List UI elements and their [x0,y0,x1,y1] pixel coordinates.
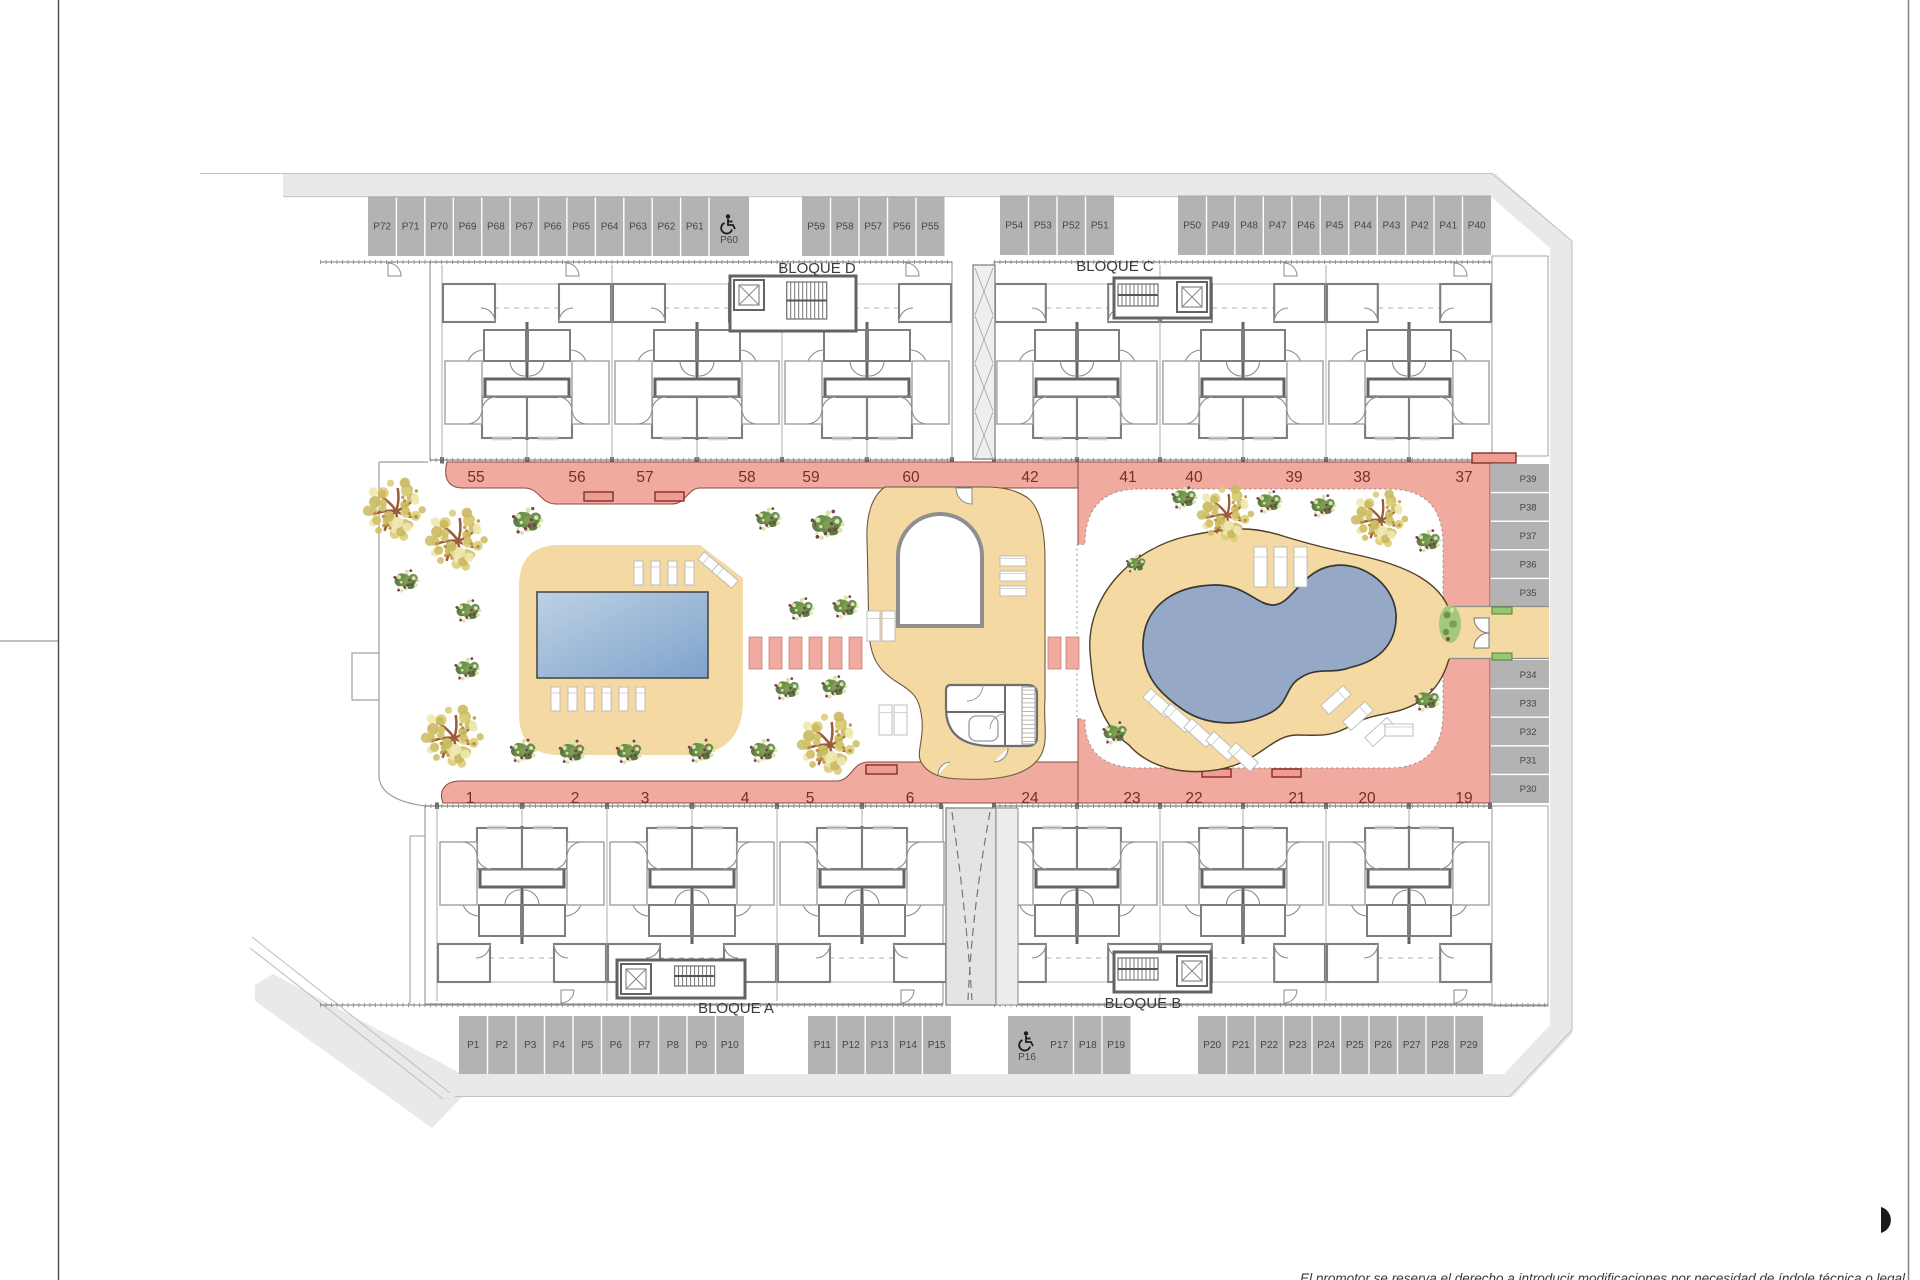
svg-text:P39: P39 [1520,474,1537,485]
svg-text:P18: P18 [1079,1040,1097,1051]
svg-text:P38: P38 [1520,502,1537,513]
svg-text:4: 4 [741,790,750,807]
svg-text:P57: P57 [864,222,882,233]
svg-text:56: 56 [568,469,585,486]
svg-text:P21: P21 [1232,1040,1250,1051]
svg-text:P13: P13 [871,1040,889,1051]
svg-text:BLOQUE D: BLOQUE D [778,260,856,277]
svg-text:P67: P67 [515,222,533,233]
svg-text:P62: P62 [658,222,676,233]
svg-text:P1: P1 [467,1040,480,1051]
svg-text:60: 60 [902,469,920,486]
svg-text:P51: P51 [1091,221,1109,232]
svg-text:57: 57 [636,469,653,486]
svg-text:P8: P8 [667,1040,680,1051]
svg-text:BLOQUE C: BLOQUE C [1076,258,1154,275]
svg-text:P10: P10 [721,1040,739,1051]
svg-text:2: 2 [571,790,580,807]
svg-text:P59: P59 [807,222,825,233]
svg-text:P11: P11 [814,1040,831,1051]
svg-text:41: 41 [1119,469,1136,486]
svg-text:P40: P40 [1468,221,1486,232]
svg-text:55: 55 [467,469,484,486]
svg-text:P14: P14 [899,1040,917,1051]
svg-text:39: 39 [1285,469,1302,486]
svg-text:P60: P60 [720,235,738,246]
svg-text:P72: P72 [373,222,391,233]
svg-text:37: 37 [1455,469,1472,486]
svg-text:BLOQUE B: BLOQUE B [1105,995,1182,1012]
svg-text:P5: P5 [581,1040,594,1051]
svg-text:P15: P15 [928,1040,946,1051]
svg-text:P17: P17 [1050,1040,1068,1051]
svg-text:P37: P37 [1520,531,1537,542]
svg-text:P27: P27 [1403,1040,1421,1051]
svg-text:P36: P36 [1520,560,1537,571]
svg-text:P12: P12 [842,1040,860,1051]
svg-text:P69: P69 [459,222,477,233]
svg-text:P65: P65 [572,222,590,233]
svg-text:P55: P55 [921,222,939,233]
svg-text:P48: P48 [1240,221,1258,232]
svg-text:38: 38 [1353,469,1370,486]
svg-text:19: 19 [1455,790,1472,807]
svg-text:P45: P45 [1326,221,1344,232]
svg-text:P46: P46 [1297,221,1315,232]
svg-text:P52: P52 [1062,221,1080,232]
svg-text:P49: P49 [1212,221,1230,232]
svg-text:P16: P16 [1018,1052,1036,1063]
svg-text:P24: P24 [1317,1040,1335,1051]
svg-text:20: 20 [1358,790,1376,807]
svg-text:P3: P3 [524,1040,537,1051]
svg-text:P42: P42 [1411,221,1429,232]
svg-text:P66: P66 [544,222,562,233]
svg-text:P9: P9 [695,1040,708,1051]
svg-text:59: 59 [802,469,819,486]
svg-text:P64: P64 [601,222,619,233]
svg-text:24: 24 [1021,790,1039,807]
svg-text:P25: P25 [1346,1040,1364,1051]
svg-text:P31: P31 [1520,756,1537,767]
svg-text:P41: P41 [1439,221,1457,232]
svg-text:P68: P68 [487,222,505,233]
svg-text:P30: P30 [1520,784,1537,795]
svg-text:El promotor se reserva el dere: El promotor se reserva el derecho a intr… [1300,1271,1906,1280]
svg-text:P19: P19 [1107,1040,1125,1051]
svg-text:P35: P35 [1520,588,1537,599]
svg-text:P70: P70 [430,222,448,233]
svg-text:BLOQUE A: BLOQUE A [698,1000,774,1017]
svg-text:P61: P61 [686,222,704,233]
svg-text:5: 5 [806,790,815,807]
svg-text:P7: P7 [638,1040,651,1051]
svg-text:P56: P56 [893,222,911,233]
svg-text:1: 1 [466,790,475,807]
svg-text:40: 40 [1185,469,1203,486]
svg-text:23: 23 [1123,790,1140,807]
svg-text:58: 58 [738,469,755,486]
svg-text:P23: P23 [1289,1040,1307,1051]
svg-text:P20: P20 [1203,1040,1221,1051]
svg-text:P53: P53 [1034,221,1052,232]
svg-text:P4: P4 [553,1040,566,1051]
svg-text:22: 22 [1185,790,1202,807]
svg-text:P29: P29 [1460,1040,1478,1051]
svg-text:P6: P6 [610,1040,623,1051]
svg-text:P63: P63 [629,222,647,233]
svg-text:P33: P33 [1520,698,1537,709]
svg-text:P47: P47 [1269,221,1287,232]
svg-text:P22: P22 [1260,1040,1278,1051]
svg-text:21: 21 [1288,790,1305,807]
svg-text:P34: P34 [1520,670,1537,681]
svg-text:P54: P54 [1005,221,1023,232]
svg-text:P2: P2 [496,1040,509,1051]
svg-text:P43: P43 [1383,221,1401,232]
svg-text:42: 42 [1021,469,1038,486]
svg-text:P50: P50 [1183,221,1201,232]
svg-text:3: 3 [641,790,650,807]
svg-text:P28: P28 [1431,1040,1449,1051]
svg-text:P26: P26 [1374,1040,1392,1051]
svg-text:P71: P71 [402,222,420,233]
svg-text:P58: P58 [836,222,854,233]
svg-text:6: 6 [906,790,915,807]
svg-text:P44: P44 [1354,221,1372,232]
svg-text:P32: P32 [1520,727,1537,738]
